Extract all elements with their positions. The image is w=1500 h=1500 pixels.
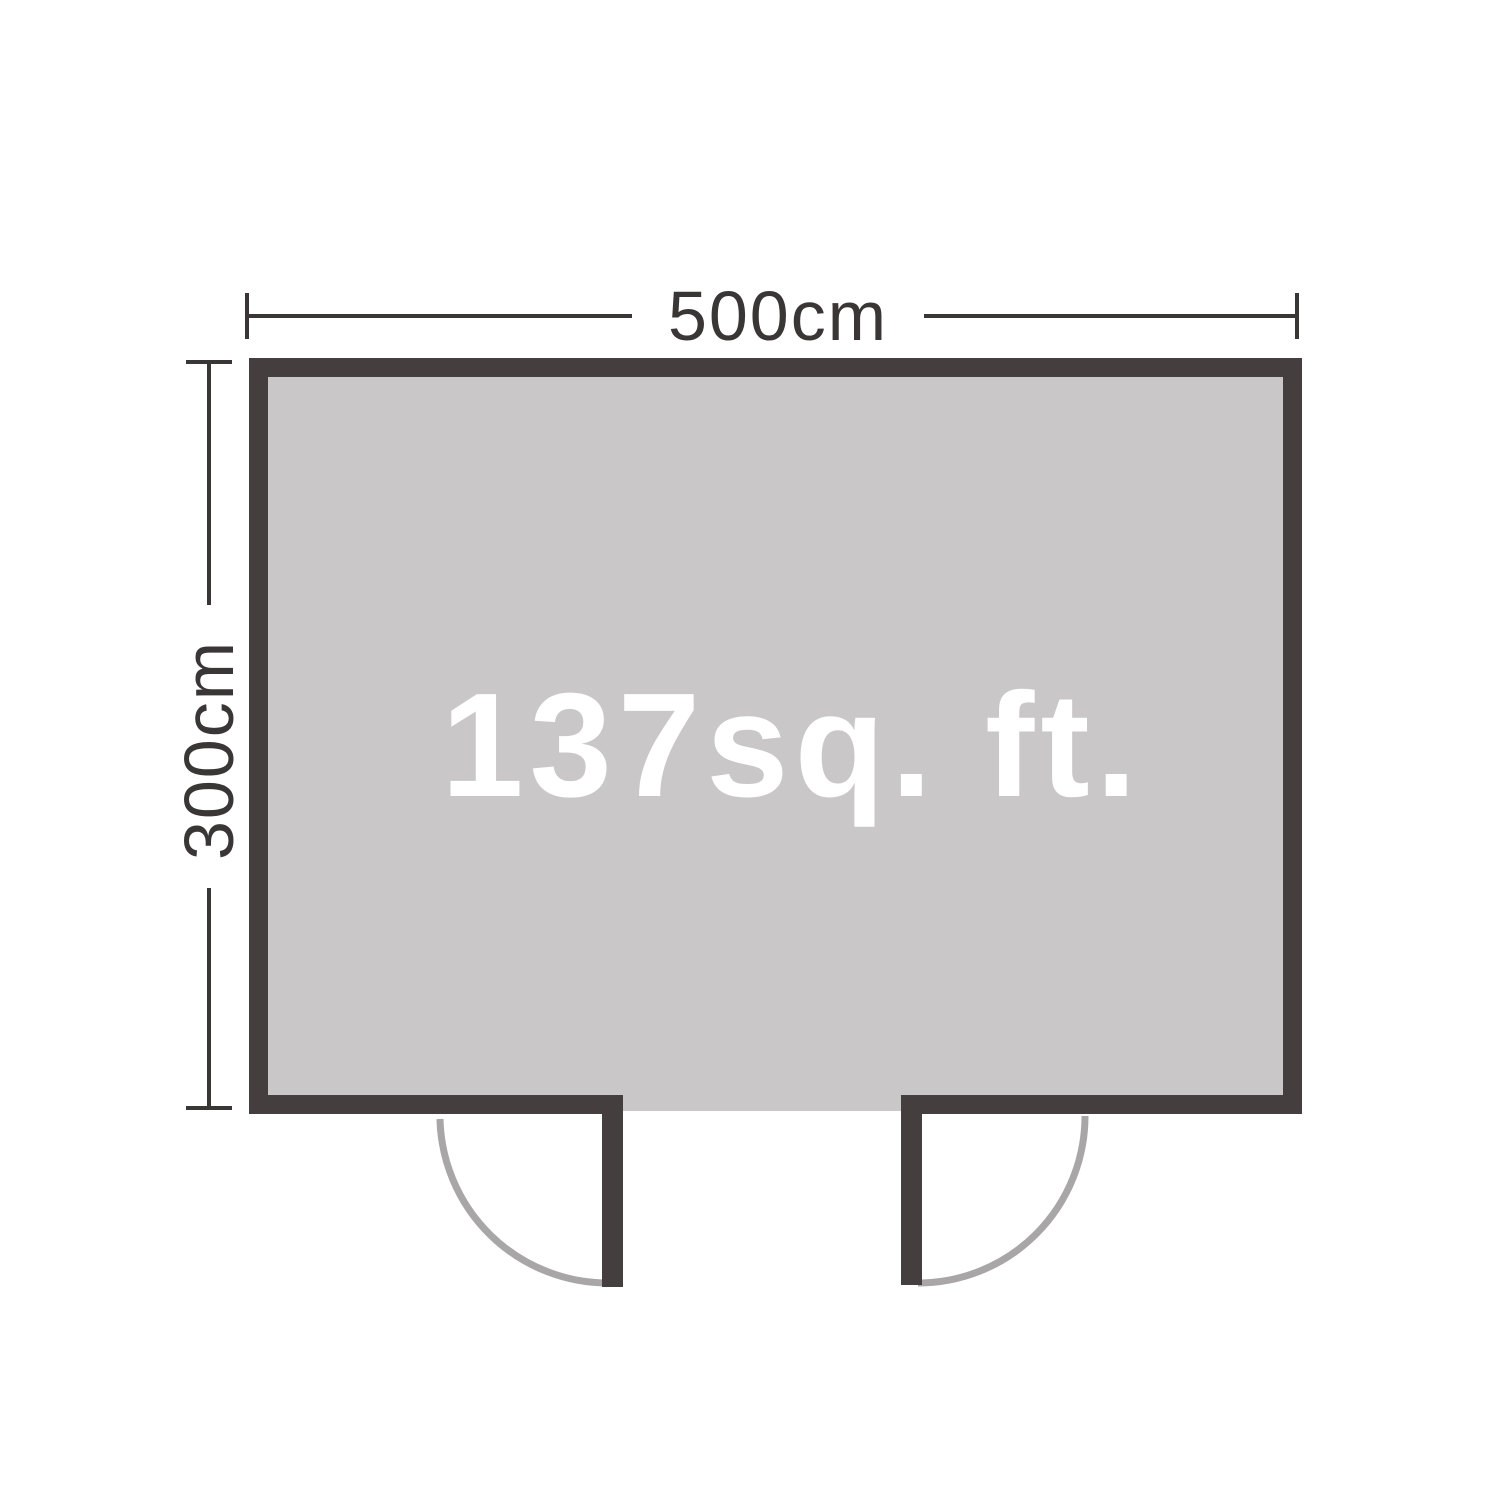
left-door-leaf (602, 1095, 623, 1287)
door-opening-floor (623, 1095, 901, 1111)
right-door-leaf (901, 1095, 922, 1285)
right-door-swing-arc (918, 1116, 1085, 1283)
floor-plan-canvas: 500cm 300cm 137sq. ft. (0, 0, 1500, 1500)
area-label: 137sq. ft. (441, 672, 1143, 820)
left-door-swing-arc (440, 1119, 608, 1283)
wall-bottom-right-segment (901, 1095, 1302, 1114)
wall-left (249, 358, 268, 1114)
wall-right (1283, 358, 1302, 1114)
depth-dimension-label: 300cm (174, 640, 244, 860)
width-dimension-label: 500cm (668, 281, 888, 351)
wall-top (249, 358, 1302, 377)
wall-bottom-left-segment (249, 1095, 623, 1114)
